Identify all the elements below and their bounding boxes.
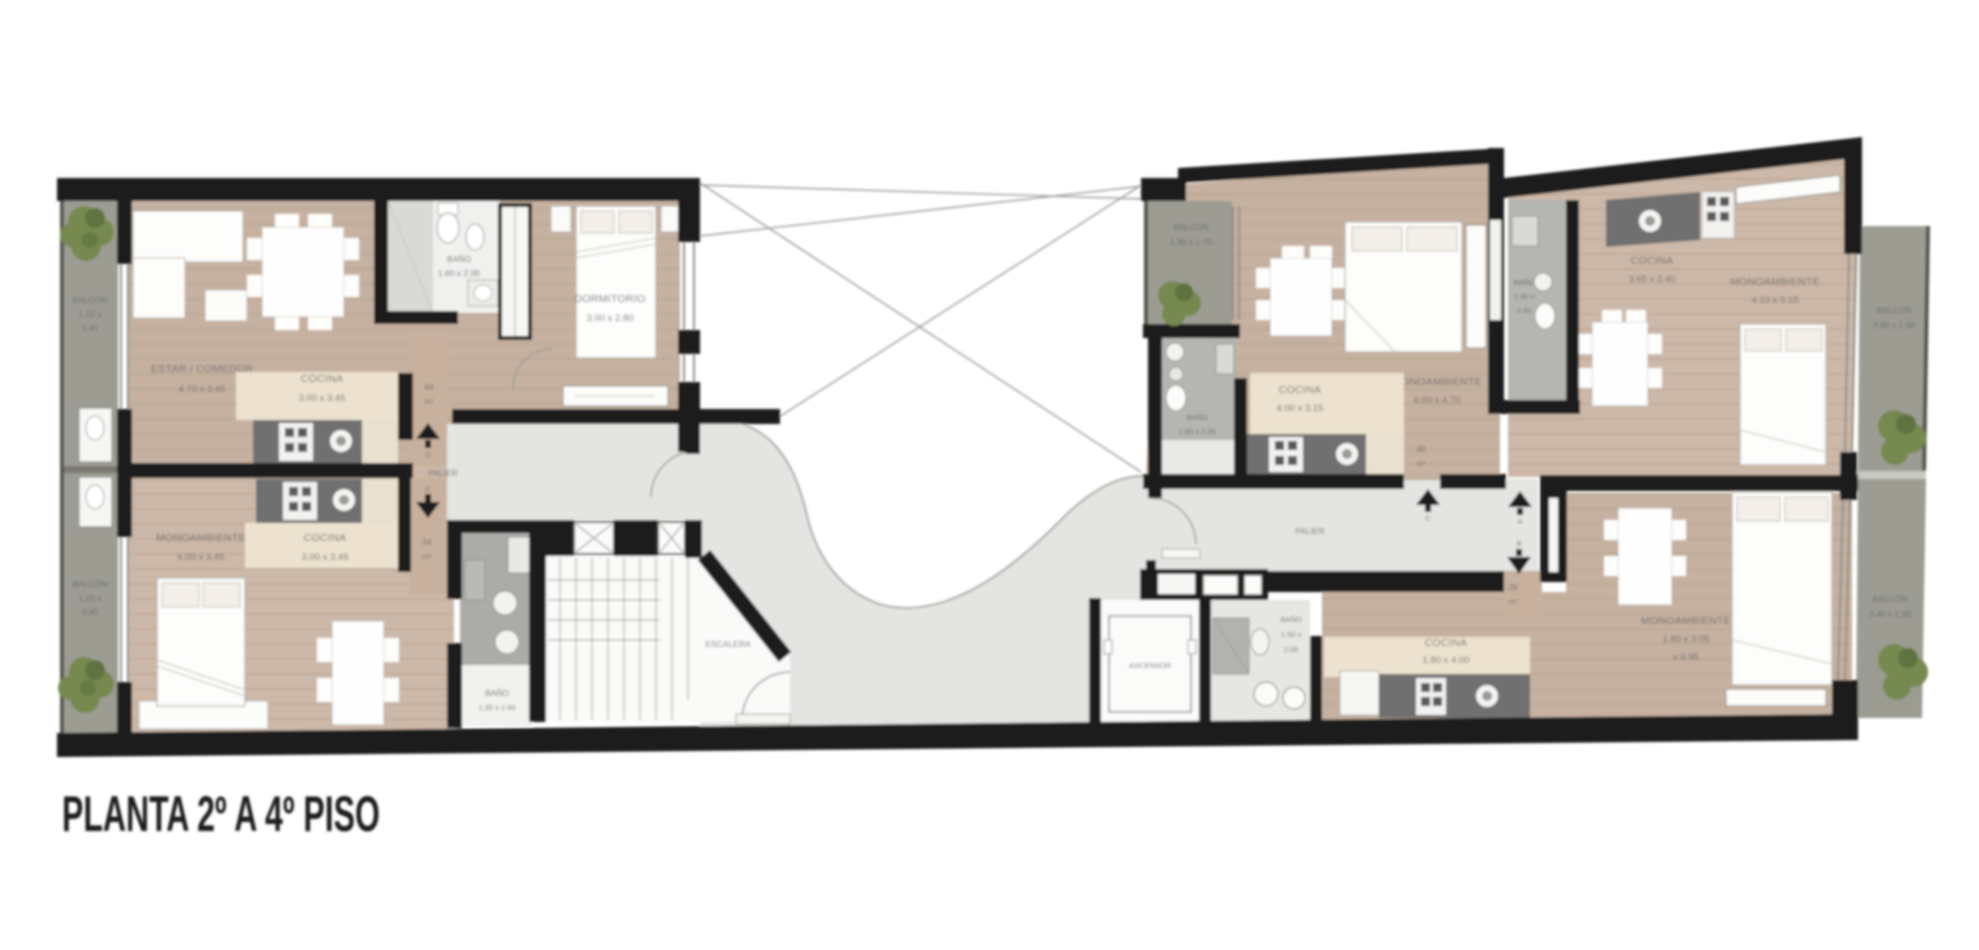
svg-text:1.50 x: 1.50 x — [1281, 630, 1302, 639]
svg-text:1.80 x 3.05: 1.80 x 3.05 — [1662, 634, 1709, 645]
svg-text:44: 44 — [424, 382, 434, 392]
svg-text:BAÑO: BAÑO — [447, 254, 471, 264]
svg-text:DORMITORIO: DORMITORIO — [574, 293, 645, 305]
svg-text:1.10 x: 1.10 x — [78, 309, 102, 319]
svg-text:1.50 x 2.05: 1.50 x 2.05 — [1178, 427, 1215, 436]
svg-text:3.65 x 2.40: 3.65 x 2.40 — [1628, 274, 1675, 285]
svg-text:BALCÓN: BALCÓN — [1873, 594, 1908, 604]
svg-text:COCINA: COCINA — [304, 532, 347, 544]
svg-text:A: A — [1517, 517, 1522, 526]
svg-text:COCINA: COCINA — [1631, 255, 1674, 267]
svg-text:C: C — [425, 484, 431, 493]
svg-text:BAÑO: BAÑO — [1513, 278, 1534, 287]
svg-text:4.00 x 3.15: 4.00 x 3.15 — [1276, 403, 1323, 414]
svg-text:3.00 x 2.80: 3.00 x 2.80 — [586, 313, 633, 324]
svg-text:BALCÓN: BALCÓN — [73, 295, 108, 305]
svg-text:2.60: 2.60 — [1517, 306, 1532, 315]
svg-text:ESCALERA: ESCALERA — [705, 639, 751, 649]
svg-text:COCINA: COCINA — [301, 373, 344, 385]
svg-text:COCINA: COCINA — [1279, 384, 1322, 396]
svg-text:MONOAMBIENTE: MONOAMBIENTE — [1730, 276, 1820, 288]
svg-text:MONOAMBIENTE: MONOAMBIENTE — [1392, 376, 1482, 388]
svg-text:30: 30 — [1416, 444, 1426, 454]
svg-text:34: 34 — [422, 537, 432, 547]
svg-text:m²: m² — [1417, 459, 1426, 468]
svg-text:6.00 x 3.45: 6.00 x 3.45 — [177, 552, 224, 563]
svg-text:m²: m² — [425, 397, 434, 406]
svg-text:MONOAMBIENTE: MONOAMBIENTE — [1641, 615, 1731, 627]
svg-text:ASCENSOR: ASCENSOR — [1129, 661, 1172, 670]
svg-text:3.40 x 1.50: 3.40 x 1.50 — [1869, 609, 1911, 619]
svg-text:4.00 x 4.70: 4.00 x 4.70 — [1413, 395, 1460, 406]
svg-text:1.35 x 2.65: 1.35 x 2.65 — [478, 703, 515, 712]
svg-text:PLANTA 2º A 4º PISO: PLANTA 2º A 4º PISO — [62, 786, 380, 842]
svg-text:1.30 x: 1.30 x — [1514, 292, 1535, 301]
svg-text:BAÑO: BAÑO — [1280, 615, 1301, 624]
svg-text:COCINA: COCINA — [1425, 637, 1468, 649]
svg-text:MONOAMBIENTE: MONOAMBIENTE — [156, 532, 246, 544]
svg-text:B: B — [1516, 539, 1521, 548]
svg-text:2.05: 2.05 — [1284, 645, 1299, 654]
svg-text:C: C — [1425, 514, 1431, 523]
svg-text:4.10 x 5.15: 4.10 x 5.15 — [1751, 295, 1798, 306]
svg-text:D: D — [425, 450, 431, 459]
svg-text:BALCÓN: BALCÓN — [1174, 222, 1209, 232]
svg-text:PALIER: PALIER — [428, 468, 458, 478]
svg-text:BAÑO: BAÑO — [485, 688, 509, 698]
svg-text:26: 26 — [1508, 582, 1518, 592]
svg-text:3.45: 3.45 — [82, 607, 99, 617]
svg-text:BALCÓN: BALCÓN — [73, 579, 108, 589]
svg-text:3.45: 3.45 — [82, 323, 99, 333]
svg-text:3.00 x 3.45: 3.00 x 3.45 — [298, 393, 345, 404]
svg-text:x 9.95: x 9.95 — [1673, 652, 1699, 663]
svg-text:3.40 x 1.50: 3.40 x 1.50 — [1873, 320, 1915, 330]
svg-text:m²: m² — [423, 552, 432, 561]
svg-text:4.70 x 3.45: 4.70 x 3.45 — [178, 384, 225, 395]
svg-text:BAÑO: BAÑO — [1186, 413, 1207, 422]
svg-text:m²: m² — [1509, 597, 1518, 606]
svg-text:1.10 x: 1.10 x — [78, 593, 102, 603]
svg-text:PALIER: PALIER — [1295, 526, 1325, 536]
svg-text:1.30 x 1.70: 1.30 x 1.70 — [1170, 237, 1212, 247]
svg-text:1.80 x 4.00: 1.80 x 4.00 — [1422, 655, 1469, 666]
svg-text:BALCÓN: BALCÓN — [1877, 305, 1912, 315]
svg-text:1.60 x 2.00: 1.60 x 2.00 — [438, 268, 480, 278]
svg-text:3.00 x 3.45: 3.00 x 3.45 — [301, 552, 348, 563]
